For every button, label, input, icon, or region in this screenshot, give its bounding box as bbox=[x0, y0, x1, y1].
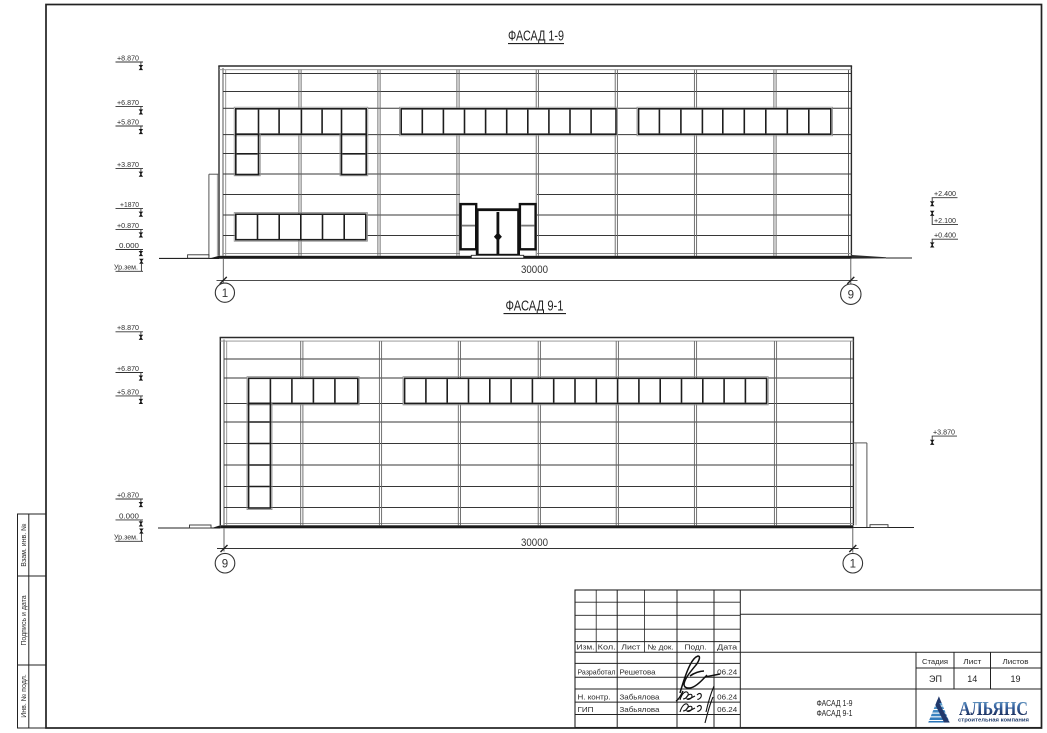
svg-text:14: 14 bbox=[967, 674, 977, 684]
svg-text:Кол.: Кол. bbox=[598, 643, 616, 652]
svg-text:ФАСАД 1-9: ФАСАД 1-9 bbox=[508, 29, 564, 45]
svg-text:ГИП: ГИП bbox=[578, 705, 594, 714]
svg-text:06.24: 06.24 bbox=[717, 705, 737, 714]
svg-text:Дата: Дата bbox=[717, 643, 737, 652]
svg-text:+1870: +1870 bbox=[120, 200, 139, 209]
svg-text:Разработал: Разработал bbox=[578, 667, 616, 676]
svg-text:Подпись и дата: Подпись и дата bbox=[21, 595, 28, 645]
svg-text:+3.870: +3.870 bbox=[117, 160, 139, 169]
svg-text:+8.870: +8.870 bbox=[117, 53, 139, 62]
svg-text:Стадия: Стадия bbox=[922, 657, 948, 666]
svg-text:+2.100: +2.100 bbox=[934, 216, 956, 225]
svg-text:Инв. № подл.: Инв. № подл. bbox=[21, 674, 28, 718]
svg-text:Ур.зем.: Ур.зем. bbox=[114, 533, 138, 542]
svg-text:9: 9 bbox=[222, 558, 228, 570]
svg-text:1: 1 bbox=[222, 288, 228, 300]
svg-text:+2.400: +2.400 bbox=[934, 189, 956, 198]
svg-text:Ур.зем.: Ур.зем. bbox=[114, 263, 138, 272]
svg-text:1: 1 bbox=[850, 558, 856, 570]
svg-text:ЭП: ЭП bbox=[929, 674, 942, 684]
svg-text:ФАСАД 9-1: ФАСАД 9-1 bbox=[506, 299, 564, 315]
svg-text:Взам. инв. №: Взам. инв. № bbox=[21, 523, 28, 566]
svg-text:0.000: 0.000 bbox=[119, 241, 139, 250]
svg-text:Листов: Листов bbox=[1003, 657, 1029, 666]
svg-text:строительная компания: строительная компания bbox=[958, 718, 1029, 724]
svg-text:Забьялова: Забьялова bbox=[620, 705, 660, 714]
svg-text:ФАСАД 1-9: ФАСАД 1-9 bbox=[817, 699, 853, 708]
svg-text:+5.870: +5.870 bbox=[117, 387, 139, 396]
svg-text:+6.870: +6.870 bbox=[117, 98, 139, 107]
svg-text:№ док.: № док. bbox=[648, 643, 674, 652]
svg-text:Решетова: Решетова bbox=[620, 667, 656, 676]
svg-text:30000: 30000 bbox=[521, 537, 548, 549]
svg-text:+8.870: +8.870 bbox=[117, 323, 139, 332]
svg-text:+0.400: +0.400 bbox=[934, 231, 956, 240]
svg-text:19: 19 bbox=[1010, 674, 1020, 684]
svg-text:06.24: 06.24 bbox=[717, 667, 737, 676]
svg-text:Н. контр.: Н. контр. bbox=[578, 692, 611, 701]
svg-text:Изм.: Изм. bbox=[577, 643, 595, 652]
svg-text:+5.870: +5.870 bbox=[117, 117, 139, 126]
svg-text:АЛЬЯНС: АЛЬЯНС bbox=[959, 698, 1028, 720]
svg-text:+3.870: +3.870 bbox=[933, 428, 955, 437]
svg-text:+0.870: +0.870 bbox=[117, 221, 139, 230]
svg-text:Лист: Лист bbox=[963, 657, 982, 666]
svg-text:Подп.: Подп. bbox=[685, 643, 707, 652]
svg-text:ФАСАД 9-1: ФАСАД 9-1 bbox=[817, 709, 853, 718]
svg-text:+0.870: +0.870 bbox=[117, 490, 139, 499]
svg-text:0.000: 0.000 bbox=[119, 511, 139, 520]
svg-text:+6.870: +6.870 bbox=[117, 364, 139, 373]
svg-text:06.24: 06.24 bbox=[717, 692, 737, 701]
svg-text:9: 9 bbox=[848, 289, 854, 301]
svg-text:Забьялова: Забьялова bbox=[620, 692, 660, 701]
svg-text:30000: 30000 bbox=[521, 264, 548, 276]
svg-text:Лист: Лист bbox=[621, 643, 641, 652]
